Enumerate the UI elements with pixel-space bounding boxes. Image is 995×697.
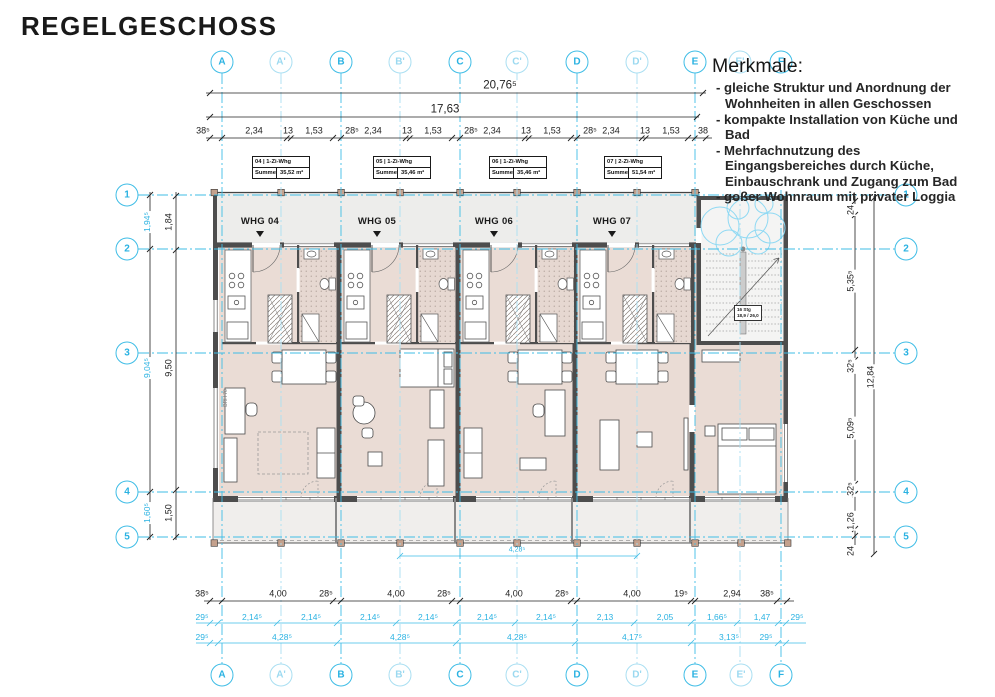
grid-bubble-bot-d1: D'	[626, 664, 649, 687]
dim-label: 2,14⁵	[476, 613, 498, 622]
merkmale-item: - kompakte Installation von Küche und Ba…	[712, 112, 976, 143]
dim-label: 2,34	[244, 127, 264, 136]
dim-label: 13	[639, 127, 651, 136]
stair-data-label: 16 Stg 18,9 / 26,0	[734, 305, 762, 321]
entrance-arrow-icon	[373, 231, 381, 237]
floor-plan-page: REGELGESCHOSS A A' B B' C C' D D' E E' F…	[0, 0, 995, 697]
grid-bubble-left-5: 5	[116, 526, 139, 549]
entrance-arrow-icon	[490, 231, 498, 237]
dim-label: 2,14⁵	[241, 613, 263, 622]
grid-bubble-bot-b1: B'	[389, 664, 412, 687]
dim-label: 5,35⁵	[847, 269, 856, 292]
dim-label: 9,50	[165, 358, 174, 378]
unit-id: 05 | 1-Zi-Whg	[374, 157, 430, 168]
whg-06-label: WHG 06	[475, 216, 513, 227]
dim-label: 4,00	[504, 590, 524, 599]
dim-label: 1,47	[753, 613, 772, 622]
dim-label: 1,60⁵	[143, 502, 152, 524]
merkmale-block: Merkmale: - gleiche Struktur und Anordnu…	[712, 56, 976, 205]
dim-label: 13	[282, 127, 294, 136]
grid-bubble-top-d1: D'	[626, 51, 649, 74]
summe-label: Summe	[605, 168, 629, 178]
dim-label: 2,13	[596, 613, 615, 622]
grid-bubble-bot-e1: E'	[730, 664, 753, 687]
entrance-arrow-icon	[608, 231, 616, 237]
grid-bubble-top-c1: C'	[506, 51, 529, 74]
dim-label: 1,50	[165, 503, 174, 523]
dim-label: 32⁵	[847, 358, 856, 374]
dim-label: 2,34	[363, 127, 383, 136]
dim-label: 2,94	[722, 590, 742, 599]
merkmale-item: - gleiche Struktur und Anordnung der Woh…	[712, 80, 976, 111]
loggia-band	[213, 498, 788, 543]
unit-info-box-05: 05 | 1-Zi-Whg Summe35,46 m²	[373, 156, 431, 179]
dim-label: 38	[697, 127, 709, 136]
summe-label: Summe	[253, 168, 277, 178]
dim-label: 24	[847, 545, 856, 557]
grid-bubble-bot-a: A	[211, 664, 234, 687]
dim-label: 1,53	[423, 127, 443, 136]
dim-label: 19⁵	[673, 590, 689, 599]
grid-bubble-bot-c: C	[449, 664, 472, 687]
page-title: REGELGESCHOSS	[21, 12, 277, 41]
unit-info-box-06: 06 | 1-Zi-Whg Summe35,46 m²	[489, 156, 547, 179]
grid-bubble-top-b: B	[330, 51, 353, 74]
summe-label: Summe	[490, 168, 514, 178]
dim-label: 1,53	[661, 127, 681, 136]
unit-id: 06 | 1-Zi-Whg	[490, 157, 546, 168]
unit-info-box-04: 04 | 1-Zi-Whg Summe35,52 m²	[252, 156, 310, 179]
dim-label: 1,84	[165, 212, 174, 232]
dim-label: 38⁵	[194, 590, 210, 599]
whg-04-label: WHG 04	[241, 216, 279, 227]
dim-label: 29⁵	[759, 633, 774, 642]
brh-annotation: BRH 70	[223, 389, 229, 407]
dim-label: 1,53	[542, 127, 562, 136]
unit-id: 04 | 1-Zi-Whg	[253, 157, 309, 168]
dim-label: 13	[520, 127, 532, 136]
dim-label: 2,34	[482, 127, 502, 136]
grid-bubble-left-3: 3	[116, 342, 139, 365]
dim-total-mid: 17,63	[429, 104, 462, 116]
grid-bubble-bot-e: E	[684, 664, 707, 687]
dim-label: 28⁵	[582, 127, 598, 136]
unit-area: 35,46 m²	[514, 168, 546, 178]
dim-label: 4,17⁵	[621, 633, 643, 642]
dim-label: 5,09⁵	[847, 416, 856, 439]
dim-label: 2,34	[601, 127, 621, 136]
dim-label: 4,00	[386, 590, 406, 599]
dim-label: 28⁵	[344, 127, 360, 136]
merkmale-heading: Merkmale:	[712, 56, 976, 77]
grid-bubble-bot-f: F	[770, 664, 793, 687]
grid-bubble-top-d: D	[566, 51, 589, 74]
grid-bubble-top-c: C	[449, 51, 472, 74]
dim-label: 24	[847, 204, 856, 216]
dim-label: 1,66⁵	[706, 613, 728, 622]
dim-label: 2,14⁵	[417, 613, 439, 622]
unit-id: 07 | 2-Zi-Whg	[605, 157, 661, 168]
dim-label: 2,14⁵	[300, 613, 322, 622]
dim-label: 29⁵	[790, 613, 805, 622]
summe-label: Summe	[374, 168, 398, 178]
whg-07-label: WHG 07	[593, 216, 631, 227]
dim-label: 4,28⁵	[506, 633, 528, 642]
dim-label: 4,00	[268, 590, 288, 599]
stair-riser-tread: 18,9 / 26,0	[737, 313, 759, 319]
dim-label: 32⁵	[847, 481, 856, 497]
grid-bubble-bot-b: B	[330, 664, 353, 687]
dim-label: 38⁵	[195, 127, 211, 136]
dim-label: 28⁵	[318, 590, 334, 599]
grid-bubble-top-a: A	[211, 51, 234, 74]
dim-label: 2,14⁵	[535, 613, 557, 622]
grid-bubble-top-a1: A'	[270, 51, 293, 74]
dim-label: 29⁵	[195, 633, 210, 642]
grid-bubble-right-4: 4	[895, 481, 918, 504]
dim-label: 9,04⁵	[143, 357, 152, 379]
dim-label: 1,26	[847, 511, 856, 531]
grid-bubble-left-4: 4	[116, 481, 139, 504]
dim-label: 2,14⁵	[359, 613, 381, 622]
grid-bubble-left-1: 1	[116, 184, 139, 207]
entrance-arrow-icon	[256, 231, 264, 237]
grid-bubble-top-b1: B'	[389, 51, 412, 74]
grid-bubble-right-5: 5	[895, 526, 918, 549]
unit-area: 51,54 m²	[629, 168, 661, 178]
dim-label-balcony: 4,28⁵	[509, 547, 526, 554]
grid-bubble-right-2: 2	[895, 238, 918, 261]
dim-label: 13	[401, 127, 413, 136]
dim-label: 4,28⁵	[271, 633, 293, 642]
grid-bubble-bot-d: D	[566, 664, 589, 687]
dim-label: 28⁵	[436, 590, 452, 599]
dim-label: 1,53	[304, 127, 324, 136]
dim-total-right: 12,84	[867, 365, 876, 390]
grid-bubble-left-2: 2	[116, 238, 139, 261]
dim-label: 29⁵	[195, 613, 210, 622]
dim-label: 4,28⁵	[389, 633, 411, 642]
grid-bubble-bot-a1: A'	[270, 664, 293, 687]
unit-info-box-07: 07 | 2-Zi-Whg Summe51,54 m²	[604, 156, 662, 179]
dim-label: 28⁵	[463, 127, 479, 136]
merkmale-item: - goßer Wohnraum mit privater Loggia	[712, 189, 976, 205]
grid-bubble-bot-c1: C'	[506, 664, 529, 687]
unit-area: 35,52 m²	[277, 168, 309, 178]
dim-label: 28⁵	[554, 590, 570, 599]
merkmale-item: - Mehrfachnutzung des Eingangsbereiches …	[712, 143, 976, 190]
dim-label: 1,94⁵	[143, 211, 152, 233]
dim-label: 2,05	[656, 613, 675, 622]
dim-label: 4,00	[622, 590, 642, 599]
grid-bubble-right-3: 3	[895, 342, 918, 365]
dim-label: 3,13⁵	[718, 633, 740, 642]
whg-05-label: WHG 05	[358, 216, 396, 227]
dim-total-top: 20,76⁵	[481, 80, 519, 92]
grid-bubble-top-e: E	[684, 51, 707, 74]
dim-label: 38⁵	[759, 590, 775, 599]
unit-area: 35,46 m²	[398, 168, 430, 178]
